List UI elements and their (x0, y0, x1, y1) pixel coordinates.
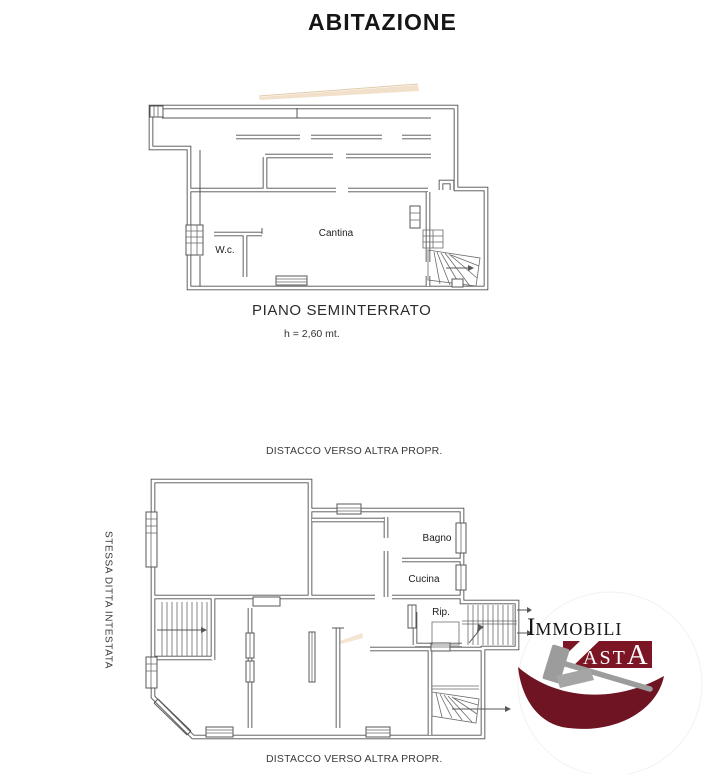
radiators (246, 605, 416, 682)
right-stair-wing (462, 605, 532, 645)
immobili-asta-logo: IMMOBILI ASTA (518, 592, 702, 774)
basement-radiator (410, 206, 420, 228)
floor-plan-page: Cantina W.c. (0, 0, 707, 774)
main-floor-windows (146, 504, 466, 737)
basement-window-bottom (276, 276, 307, 285)
left-staircase (157, 602, 207, 656)
caption-distacco-bottom: DISTACCO VERSO ALTRA PROPR. (266, 753, 443, 765)
caption-distacco-top: DISTACCO VERSO ALTRA PROPR. (266, 445, 443, 457)
bottom-right-staircase (431, 643, 511, 723)
scan-streak-mid (340, 633, 363, 644)
main-floor-plan: Bagno Cucina Rip. (146, 481, 532, 737)
ceiling-height-note: h = 2,60 mt. (284, 328, 340, 340)
room-label-bagno: Bagno (423, 533, 452, 544)
scan-streak-top (259, 84, 419, 100)
basement-window-topleft (150, 106, 163, 117)
caption-stessa-ditta: STESSA DITTA INTESTATA (103, 531, 114, 669)
rip-closet (432, 622, 459, 645)
basement-plan: Cantina W.c. (150, 106, 486, 288)
page-title: ABITAZIONE (308, 9, 457, 36)
room-label-rip: Rip. (432, 607, 450, 618)
basement-staircase (423, 230, 480, 287)
room-label-cucina: Cucina (408, 574, 440, 585)
basement-window-left (186, 225, 203, 255)
basement-caption: PIANO SEMINTERRATO (252, 302, 431, 319)
logo-immobili-text: IMMOBILI (527, 614, 622, 641)
room-label-wc: W.c. (215, 245, 234, 256)
wall-pillar (253, 597, 280, 606)
room-label-cantina: Cantina (319, 228, 354, 239)
